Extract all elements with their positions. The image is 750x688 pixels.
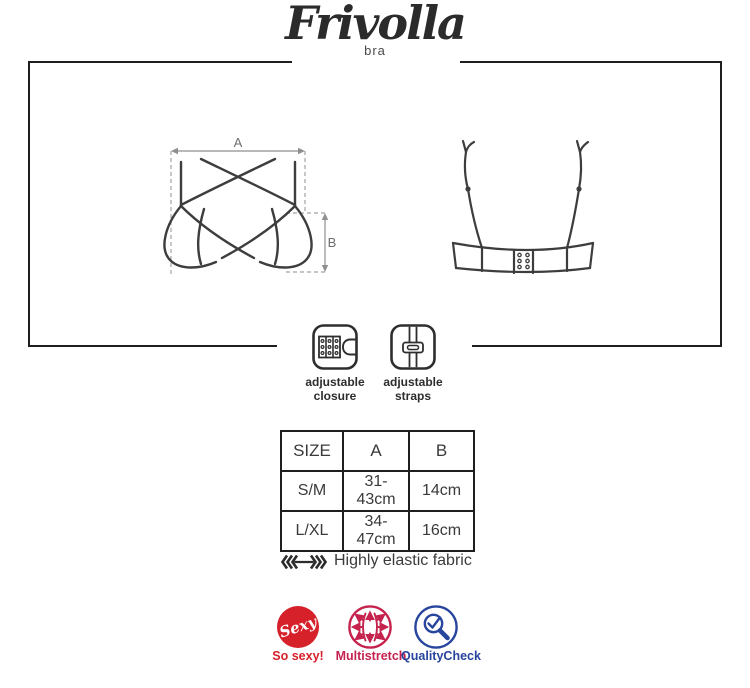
bra-front-diagram: A B xyxy=(155,130,345,285)
adjustable-closure-icon xyxy=(312,324,358,370)
product-infographic: Frivolla bra A B xyxy=(0,0,750,688)
frame-top-right xyxy=(460,61,722,63)
frame-bottom-right xyxy=(472,345,722,347)
frame-left xyxy=(28,61,30,347)
adjustable-straps-label: adjustable straps xyxy=(365,376,461,403)
bra-back-outline xyxy=(453,141,593,273)
col-header-a: A xyxy=(343,431,409,471)
size-table-header-row: SIZE A B xyxy=(281,431,474,471)
frame-top-left xyxy=(28,61,292,63)
col-header-b: B xyxy=(409,431,474,471)
table-row: L/XL 34-47cm 16cm xyxy=(281,511,474,551)
quality-check-icon xyxy=(413,604,459,650)
quality-check-badge-label: QualityCheck xyxy=(386,649,496,663)
measurement-label-a: A xyxy=(234,135,243,150)
frame-right xyxy=(720,61,722,347)
brand-name: Frivolla xyxy=(0,0,750,46)
cell-size: L/XL xyxy=(281,511,343,551)
frame-bottom-left xyxy=(28,345,277,347)
cell-a: 31-43cm xyxy=(343,471,409,511)
cell-b: 16cm xyxy=(409,511,474,551)
cell-size: S/M xyxy=(281,471,343,511)
col-header-size: SIZE xyxy=(281,431,343,471)
size-table: SIZE A B S/M 31-43cm 14cm L/XL 34-47cm 1… xyxy=(280,430,475,552)
strap-adjuster-dots xyxy=(465,186,581,191)
multistretch-icon xyxy=(347,604,393,650)
cell-b: 14cm xyxy=(409,471,474,511)
sexy-script-text: Sexy xyxy=(277,613,319,642)
fabric-note: Highly elastic fabric xyxy=(334,552,472,570)
stretch-arrow-icon xyxy=(281,554,327,570)
table-row: S/M 31-43cm 14cm xyxy=(281,471,474,511)
brand-logo: Frivolla bra xyxy=(0,0,750,58)
closure-hooks xyxy=(518,253,529,268)
measurement-label-b: B xyxy=(328,235,337,250)
brand-tagline: bra xyxy=(0,43,750,58)
bra-back-diagram xyxy=(430,130,630,290)
adjustable-straps-icon xyxy=(390,324,436,370)
cell-a: 34-47cm xyxy=(343,511,409,551)
sexy-badge-icon: Sexy xyxy=(277,606,319,648)
